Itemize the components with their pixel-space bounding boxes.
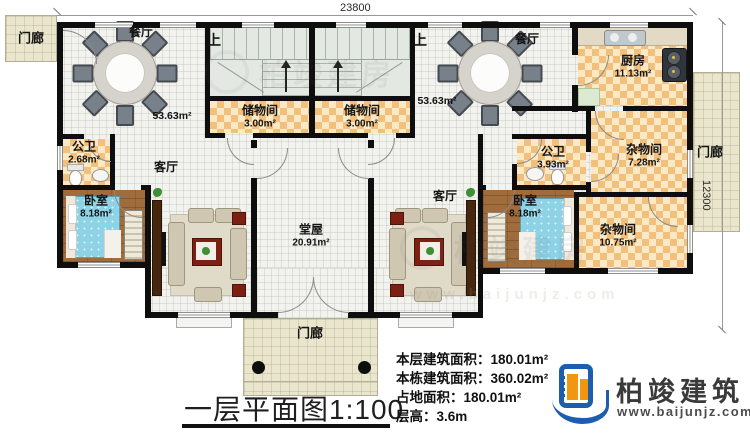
brand-logo-icon [552, 364, 610, 428]
logo-swoosh [552, 390, 609, 424]
room-name: 储物间 [242, 104, 278, 118]
sofa [168, 222, 185, 286]
chair [157, 65, 178, 83]
wall [368, 178, 374, 318]
room-area: 2.68m² [68, 154, 100, 166]
wall [514, 185, 591, 190]
window [336, 22, 366, 28]
table-center [470, 53, 510, 93]
side-table [390, 212, 404, 225]
stat-land-area: 占地面积：180.01m² [396, 388, 548, 407]
window [160, 22, 196, 28]
armchair [422, 208, 448, 223]
sofa-set-left [168, 208, 252, 300]
wall [205, 133, 225, 138]
table-center [105, 53, 145, 93]
stat-floor-area: 本层建筑面积：180.01m² [396, 350, 548, 369]
room-area: 8.18m² [80, 208, 112, 220]
window [610, 22, 648, 28]
sink-basin [610, 33, 619, 42]
room-area-dining-left: 53.63m² [152, 110, 191, 122]
stairs-up-label-right: 上 [413, 32, 427, 48]
title-underline [182, 424, 390, 428]
side-table [390, 284, 404, 297]
room-label-living-left: 客厅 [154, 161, 178, 175]
wall [512, 106, 595, 111]
basin-sink [92, 169, 109, 182]
wall [512, 134, 517, 138]
room-name: 杂物间 [626, 143, 662, 157]
dim-line-top [57, 15, 693, 16]
chair [522, 65, 543, 83]
room-area: 7.28m² [626, 157, 662, 169]
room-area: 8.18m² [509, 208, 541, 220]
sink-basin [628, 33, 637, 42]
wall [396, 133, 415, 138]
dim-width-label: 23800 [340, 2, 371, 14]
window [57, 146, 63, 170]
watermark-ring [205, 50, 249, 94]
wall [251, 178, 257, 318]
room-name: 堂屋 [292, 223, 329, 237]
window [687, 150, 693, 178]
dim-height-label: 12300 [700, 180, 712, 211]
room-label-kitchen: 厨房 11.13m² [615, 54, 652, 79]
room-label-dining-right: 餐厅 [515, 33, 539, 47]
window [242, 22, 274, 28]
plan-area: 柏竣建房 柏竣建房 www.baijunjz.com 23800 12300 门… [0, 0, 750, 441]
watermark-text: 柏竣建房 [454, 226, 590, 270]
wall [253, 133, 368, 138]
room-area: 3.00m² [242, 118, 278, 130]
room-label-bath-left: 公卫 2.68m² [68, 140, 100, 165]
room-label-porch-top-left: 门廊 [18, 32, 44, 47]
tv-cabinet-left [152, 200, 162, 296]
window [540, 22, 570, 28]
room-label-living-right: 客厅 [433, 190, 457, 204]
chair [116, 105, 134, 126]
wall [57, 185, 113, 190]
porch-column [252, 361, 265, 374]
stairs-up-label-left: 上 [207, 32, 221, 48]
bay-window-glass [178, 312, 230, 318]
watermark: 柏竣建房 [205, 50, 395, 94]
room-area: 10.75m² [599, 237, 636, 249]
window [95, 22, 133, 28]
room-label-bedroom-left: 卧室 8.18m² [80, 194, 112, 219]
room-area: 11.13m² [615, 68, 652, 80]
room-label-dining-left: 餐厅 [129, 26, 153, 40]
window [78, 262, 120, 268]
fridge [578, 88, 600, 106]
room-label-hall: 堂屋 20.91m² [292, 223, 329, 248]
room-label-utility-big: 杂物间 10.75m² [599, 223, 636, 248]
room-name: 卧室 [80, 194, 112, 208]
burner-dot [672, 70, 675, 73]
stat-building-area: 本栋建筑面积：360.02m² [396, 369, 548, 388]
room-label-porch-right: 门廊 [697, 146, 723, 161]
room-label-storage-right: 储物间 3.00m² [344, 104, 380, 129]
wall [623, 106, 693, 111]
wall [145, 185, 151, 318]
chaise [230, 228, 247, 280]
room-name: 公卫 [68, 140, 100, 154]
watermark-ring [400, 226, 444, 270]
room-area: 3.93m² [537, 159, 569, 171]
chair [438, 65, 459, 83]
sheet [104, 230, 121, 258]
pillow [68, 204, 77, 224]
room-label-bath-right: 公卫 3.93m² [537, 145, 569, 170]
porch-step-line [244, 381, 377, 382]
chair [73, 65, 94, 83]
room-area-dining-right: 53.63m² [417, 95, 456, 107]
room-area: 20.91m² [292, 237, 329, 249]
room-label-storage-left: 储物间 3.00m² [242, 104, 278, 129]
plant [202, 247, 210, 255]
porch-column [358, 361, 371, 374]
watermark: 柏竣建房 [400, 226, 590, 270]
side-table [232, 284, 246, 297]
room-label-porch-bottom: 门廊 [297, 327, 323, 342]
side-table [232, 212, 246, 225]
room-name: 杂物间 [599, 223, 636, 237]
toilet [69, 170, 82, 186]
chair [481, 105, 499, 126]
bay-window-glass [400, 312, 452, 318]
window [428, 22, 462, 28]
room-name: 卧室 [509, 194, 541, 208]
window [608, 268, 658, 274]
wall [57, 134, 84, 139]
wall [205, 96, 415, 101]
brand-url: www.baijunjz.com [617, 404, 750, 419]
tv-screen-left [162, 232, 166, 266]
wall [586, 106, 591, 152]
room-name: 储物间 [344, 104, 380, 118]
pillow [68, 230, 77, 250]
burner-dot [672, 56, 675, 59]
stats-block: 本层建筑面积：180.01m² 本栋建筑面积：360.02m² 占地面积：180… [396, 350, 548, 426]
toilet [551, 169, 564, 185]
drawing-title-text: 一层平面图 [184, 394, 329, 425]
wall [572, 22, 578, 55]
floor-plan-page: { "dims": { "width": "23800", "height": … [0, 0, 750, 441]
room-name: 公卫 [537, 145, 569, 159]
watermark-url: www.baijunjz.com [410, 286, 619, 303]
dim-line-right [722, 22, 723, 330]
armchair [188, 208, 214, 223]
room-area: 3.00m² [344, 118, 380, 130]
room-label-utility-small: 杂物间 7.28m² [626, 143, 662, 168]
stat-floor-height: 层高：3.6m [396, 407, 548, 426]
armchair [194, 287, 222, 302]
window [687, 225, 693, 253]
drawing-title: 一层平面图1:100 [184, 388, 404, 428]
pillow [563, 206, 572, 226]
wall [478, 185, 486, 190]
room-label-bedroom-right: 卧室 8.18m² [509, 194, 541, 219]
room-name: 厨房 [615, 54, 652, 68]
drawing-scale: 1:100 [329, 394, 404, 425]
watermark-text: 柏竣建房 [259, 50, 395, 94]
